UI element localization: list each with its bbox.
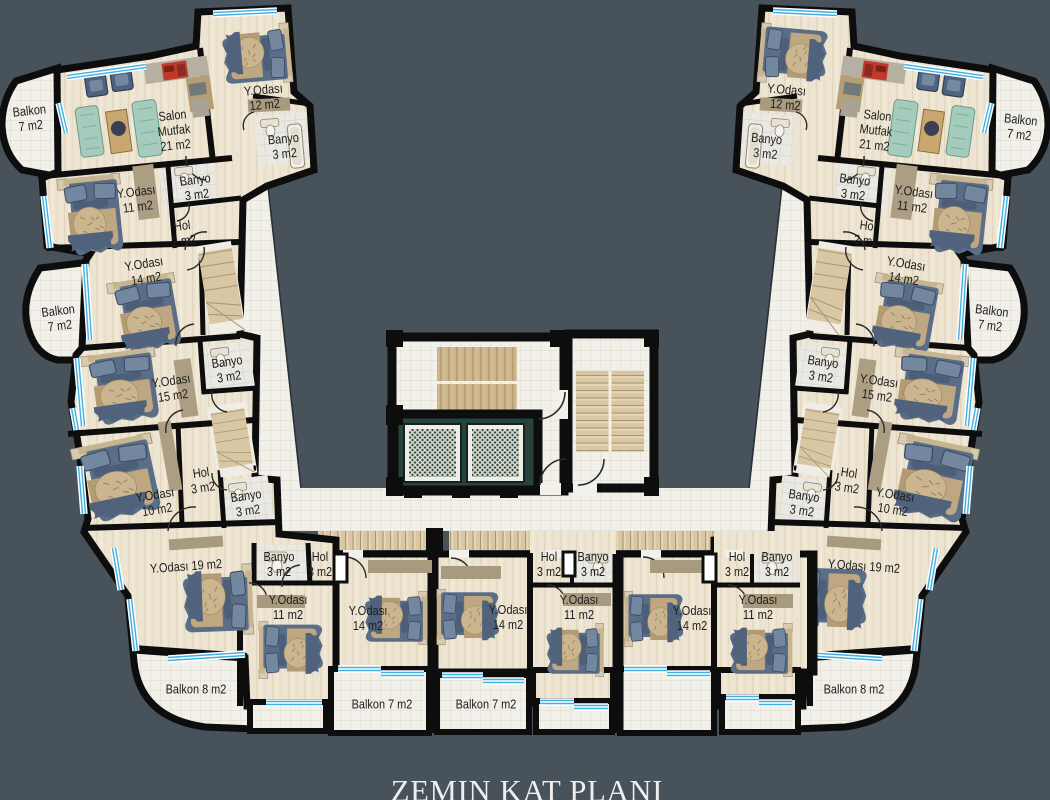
svg-text:Banyo3 m2: Banyo3 m2 <box>578 549 609 579</box>
svg-text:Balkon 8 m2: Balkon 8 m2 <box>824 682 885 697</box>
svg-text:Y.Odası11 m2: Y.Odası11 m2 <box>739 592 778 622</box>
svg-text:Y.Odası14 m2: Y.Odası14 m2 <box>349 603 388 633</box>
svg-text:ZEMIN KAT PLANI: ZEMIN KAT PLANI <box>391 774 663 800</box>
svg-text:Banyo3 m2: Banyo3 m2 <box>762 549 793 579</box>
svg-text:Banyo3 m2: Banyo3 m2 <box>267 130 300 163</box>
svg-text:Balkon 7 m2: Balkon 7 m2 <box>352 697 413 712</box>
svg-text:Balkon 7 m2: Balkon 7 m2 <box>456 697 517 712</box>
svg-text:Y.Odası11 m2: Y.Odası11 m2 <box>116 182 158 217</box>
svg-text:SalonMutfak21 m2: SalonMutfak21 m2 <box>857 106 895 154</box>
svg-text:Y.Odası14 m2: Y.Odası14 m2 <box>489 602 528 632</box>
svg-text:Balkon 8 m2: Balkon 8 m2 <box>166 682 227 697</box>
svg-text:Y.Odası14 m2: Y.Odası14 m2 <box>673 603 712 633</box>
svg-text:Banyo3 m2: Banyo3 m2 <box>264 549 295 579</box>
svg-text:Y.Odası12 m2: Y.Odası12 m2 <box>243 80 284 113</box>
svg-text:Y.Odası11 m2: Y.Odası11 m2 <box>269 592 308 622</box>
svg-text:Y.Odası11 m2: Y.Odası11 m2 <box>560 592 599 622</box>
